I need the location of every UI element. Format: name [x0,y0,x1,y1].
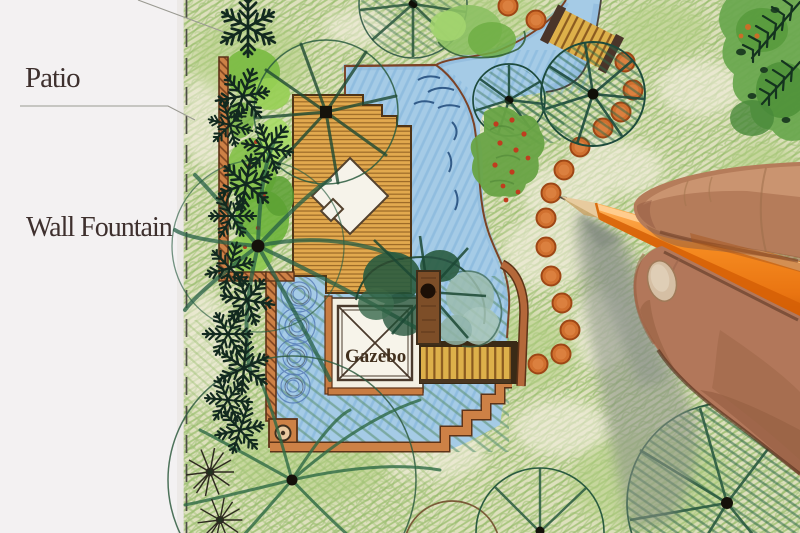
svg-text:Gazebo: Gazebo [345,346,406,367]
svg-text:Patio: Patio [25,62,80,94]
svg-text:Wall Fountain: Wall Fountain [26,212,173,243]
